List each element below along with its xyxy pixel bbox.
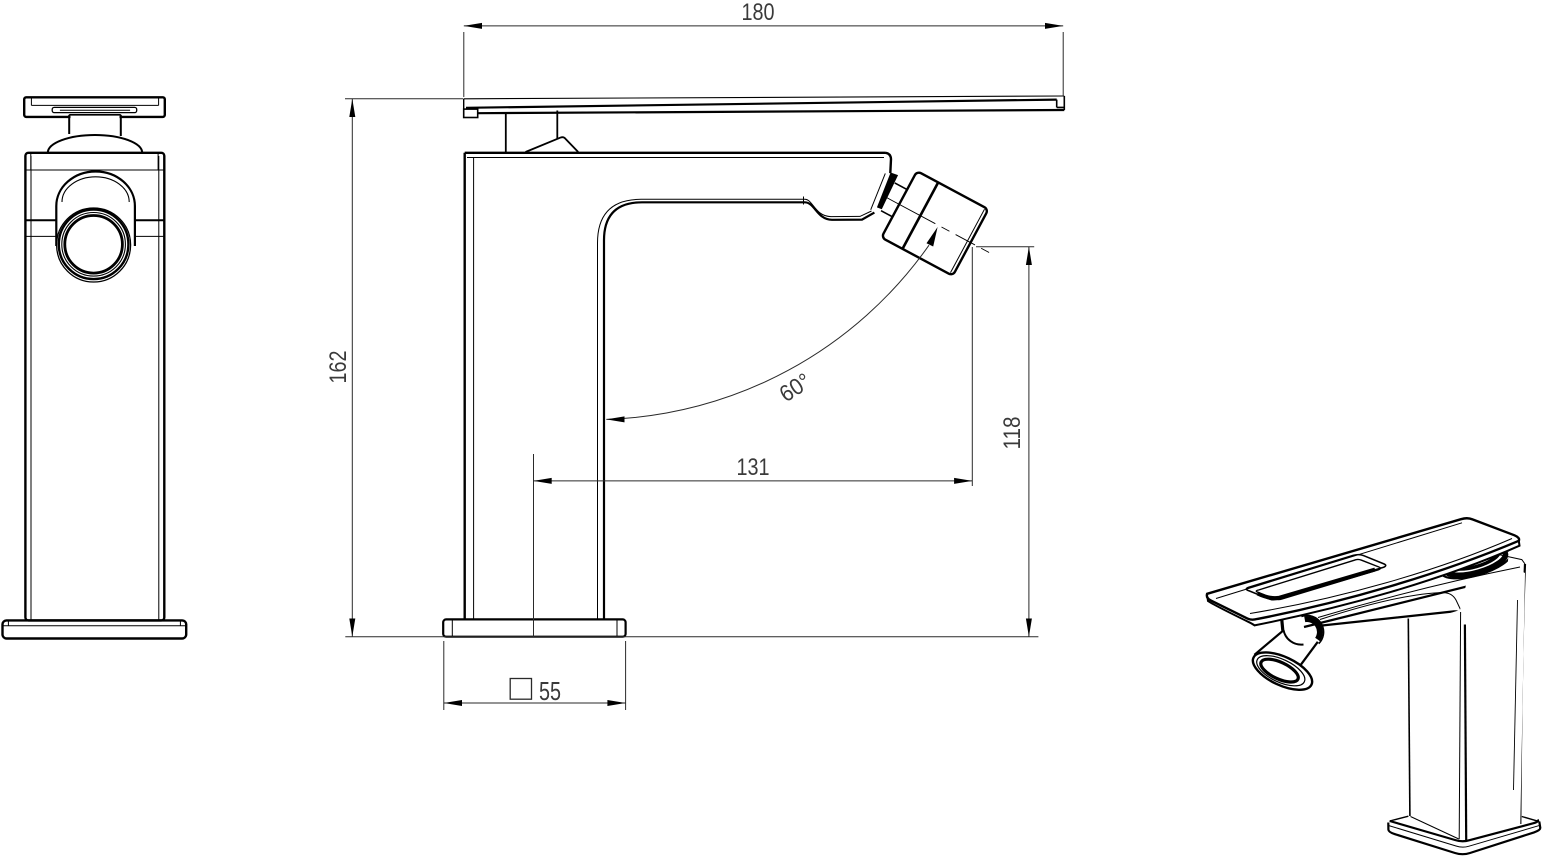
svg-text:180: 180 <box>742 0 775 26</box>
svg-text:131: 131 <box>737 454 770 481</box>
svg-text:55: 55 <box>539 676 561 706</box>
svg-text:118: 118 <box>999 417 1026 450</box>
svg-text:162: 162 <box>325 351 352 384</box>
